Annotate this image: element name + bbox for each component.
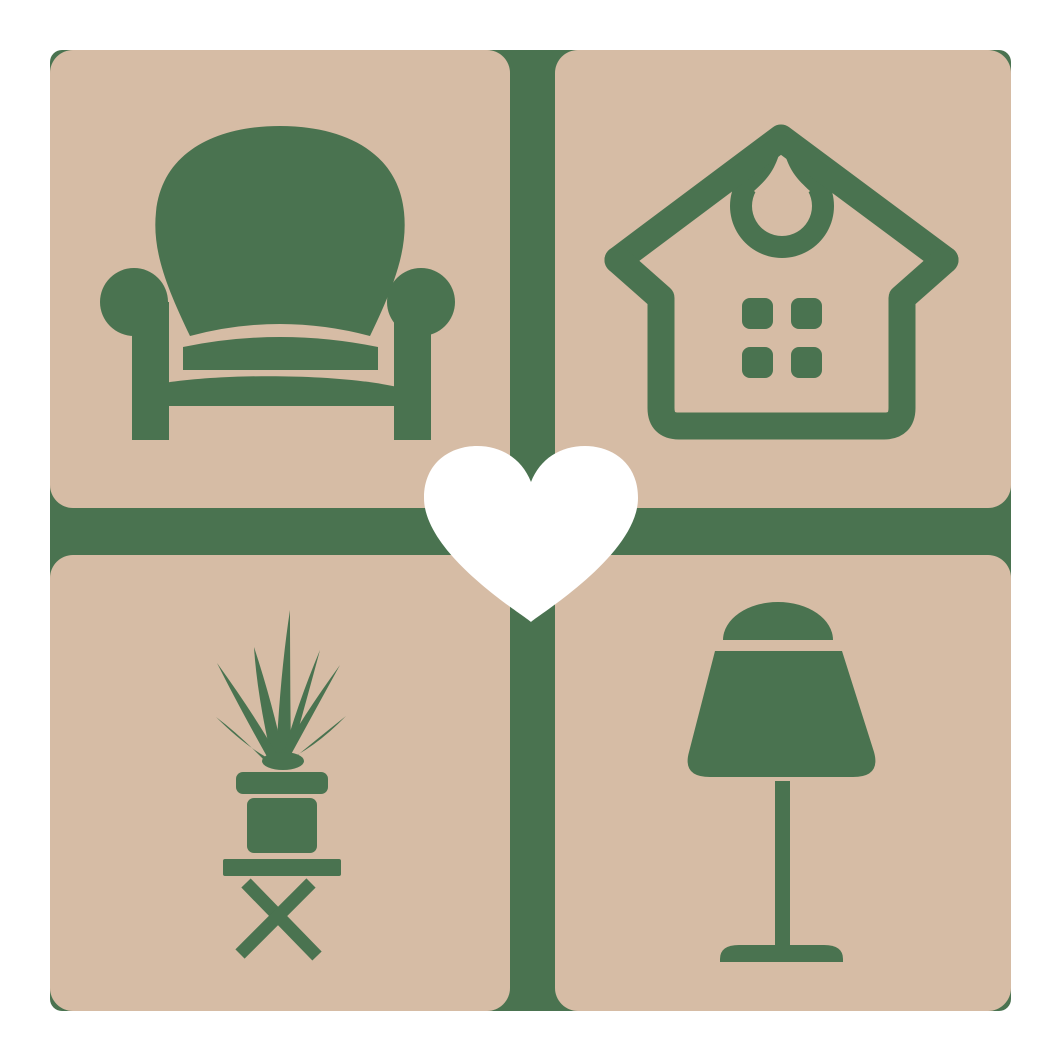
tile-house <box>555 50 1011 508</box>
brand-logo <box>50 50 1011 1011</box>
tile-armchair <box>50 50 510 508</box>
logo-canvas <box>0 0 1063 1063</box>
house-icon <box>555 50 1011 508</box>
armchair-icon <box>50 50 510 508</box>
heart-icon <box>424 446 638 624</box>
